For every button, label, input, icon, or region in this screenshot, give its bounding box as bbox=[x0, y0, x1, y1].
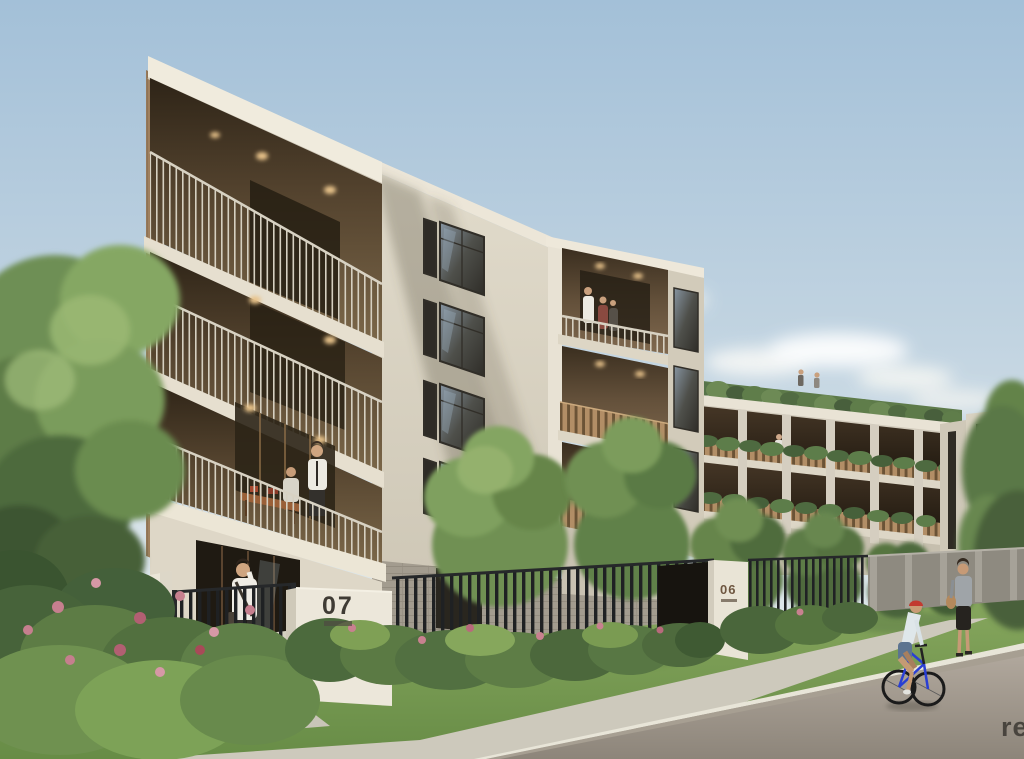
render-canvas bbox=[0, 0, 1024, 759]
building-07-plaque bbox=[324, 621, 352, 626]
architectural-render-scene: 07 06 re bbox=[0, 0, 1024, 759]
building-07-number: 07 bbox=[322, 594, 354, 619]
watermark-text: re bbox=[1001, 714, 1024, 741]
building-06-number: 06 bbox=[720, 583, 736, 596]
building-06-plaque bbox=[721, 599, 737, 602]
